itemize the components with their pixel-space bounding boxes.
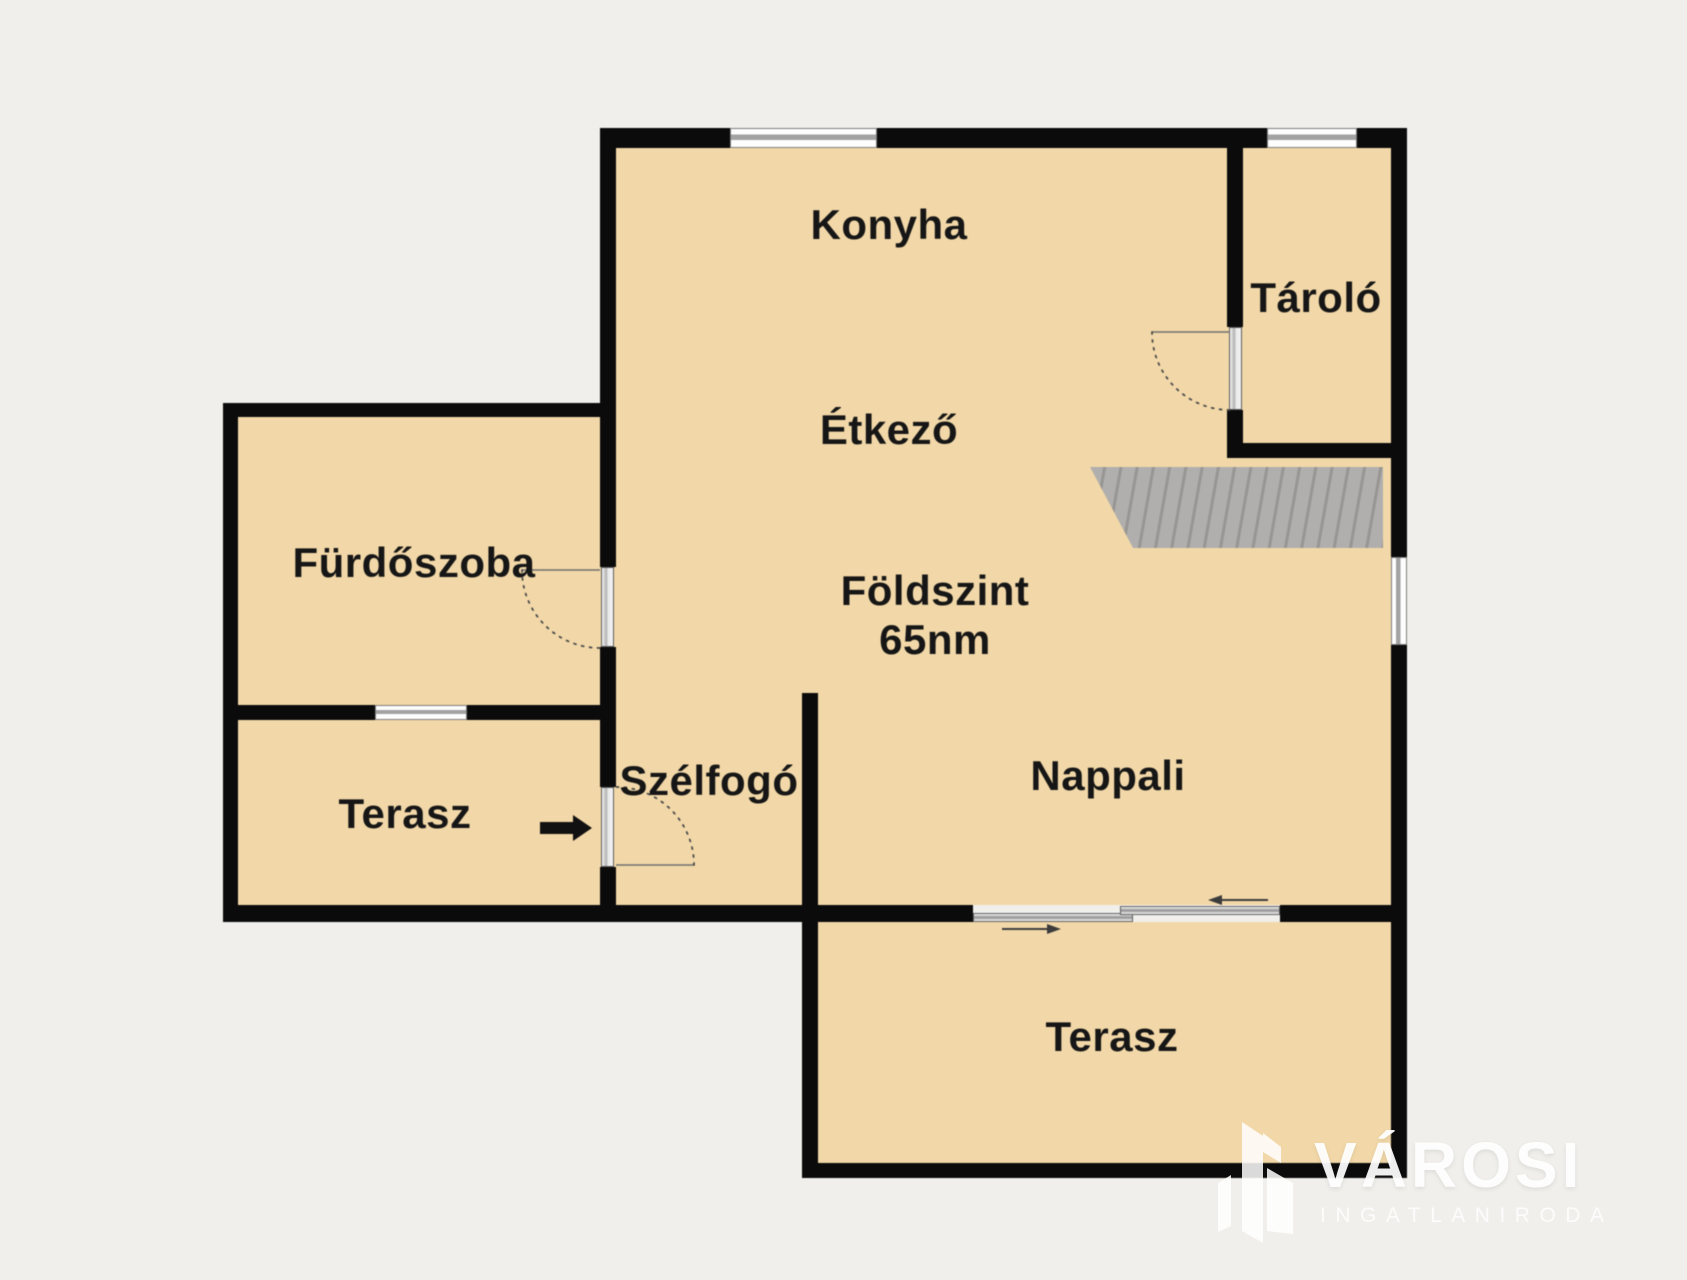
floor-plan-image: Konyha Étkező Tároló Fürdőszoba Földszin…	[0, 0, 1687, 1280]
watermark-tagline: INGATLANIRODA	[1320, 1204, 1613, 1228]
watermark-brand: VÁROSI	[1314, 1128, 1583, 1202]
brand-logo-icon	[0, 0, 1687, 1280]
